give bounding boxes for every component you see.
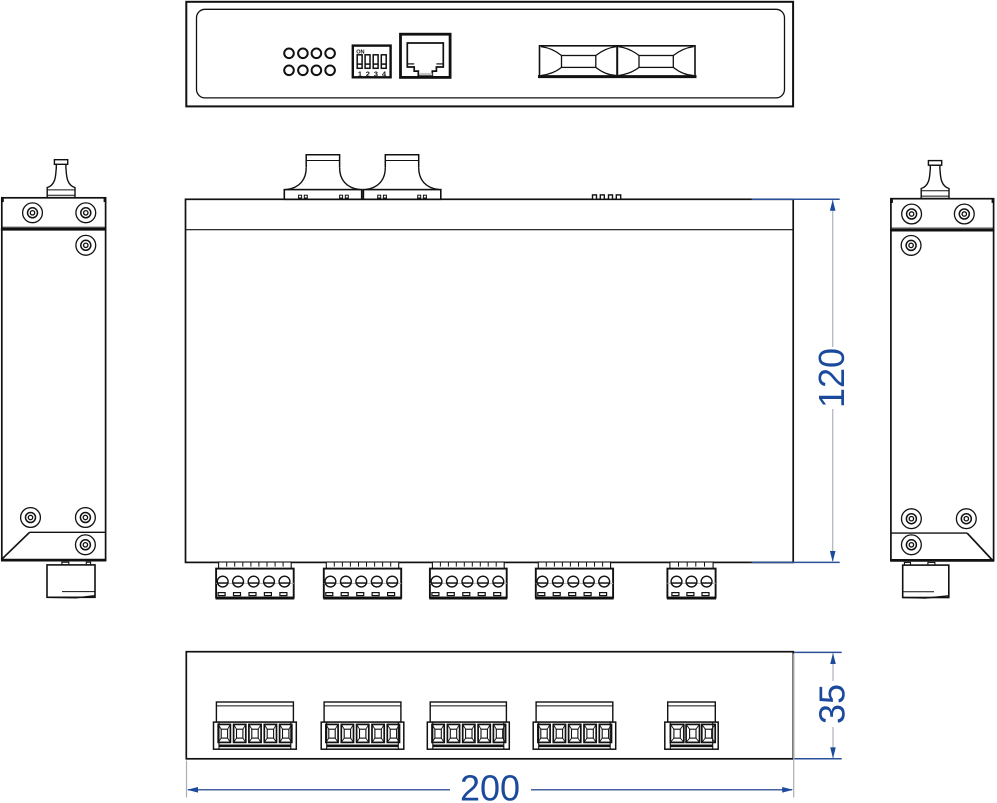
svg-text:1: 1 <box>358 69 362 78</box>
svg-text:3: 3 <box>374 69 378 78</box>
svg-text:120: 120 <box>811 348 852 408</box>
svg-text:200: 200 <box>460 768 520 803</box>
svg-text:35: 35 <box>811 684 852 724</box>
svg-text:2: 2 <box>366 69 370 78</box>
